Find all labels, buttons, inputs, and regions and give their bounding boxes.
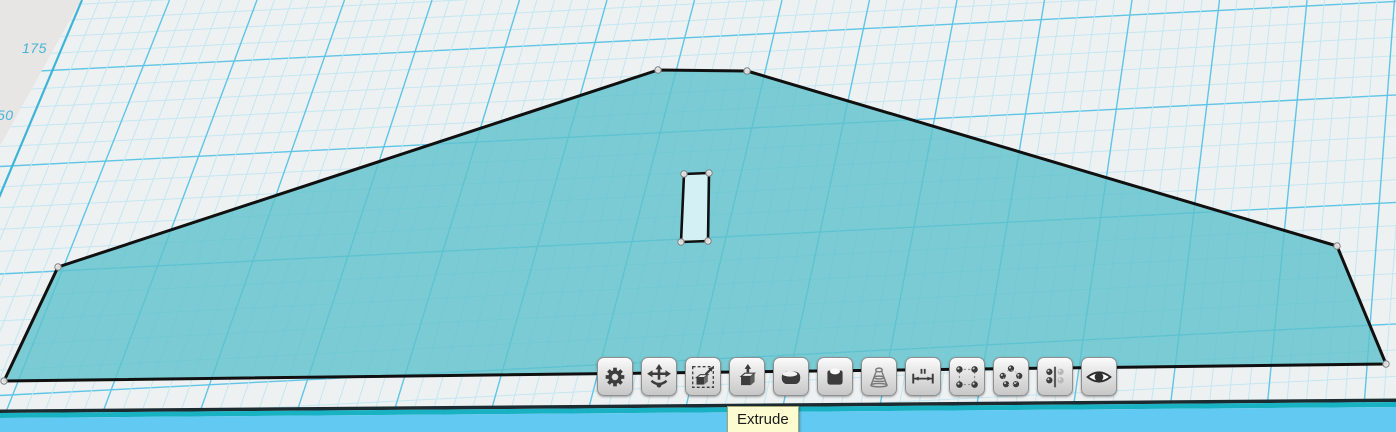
extrude-icon (734, 364, 760, 390)
vertex-marker[interactable] (678, 239, 684, 245)
toolbar-button-scale[interactable] (685, 357, 721, 396)
vertex-marker[interactable] (744, 68, 750, 74)
toolbar-button-measure[interactable] (905, 357, 941, 396)
move-icon (646, 364, 672, 390)
toolbar-button-settings[interactable] (597, 357, 633, 396)
scale-icon (690, 364, 716, 390)
toolbar-button-circular-pattern[interactable] (993, 357, 1029, 396)
toolbar-button-loft[interactable] (861, 357, 897, 396)
vertex-marker[interactable] (1383, 361, 1389, 367)
vertex-marker[interactable] (705, 238, 711, 244)
mirror-icon (1042, 364, 1068, 390)
loft-icon (866, 364, 892, 390)
rectangular-pattern-icon (954, 364, 980, 390)
toolbar-button-move[interactable] (641, 357, 677, 396)
fillet-icon (778, 364, 804, 390)
toolbar-button-hide[interactable] (1081, 357, 1117, 396)
vertex-marker[interactable] (1, 378, 7, 384)
vertex-marker[interactable] (706, 170, 712, 176)
toolbar-button-shell[interactable] (817, 357, 853, 396)
extrude-tooltip: Extrude (727, 406, 799, 432)
toolbar-button-fillet[interactable] (773, 357, 809, 396)
context-toolbar (597, 357, 1117, 396)
settings-icon (602, 364, 628, 390)
vertex-marker[interactable] (1334, 243, 1340, 249)
toolbar-button-mirror[interactable] (1037, 357, 1073, 396)
vertex-marker[interactable] (681, 171, 687, 177)
vertex-marker[interactable] (655, 67, 661, 73)
measure-icon (910, 364, 936, 390)
slot-cutout[interactable] (681, 173, 709, 242)
toolbar-button-extrude[interactable] (729, 357, 765, 396)
toolbar-button-rectangular-pattern[interactable] (949, 357, 985, 396)
cad-viewport[interactable]: 17550 Extrude (0, 0, 1396, 432)
hide-icon (1086, 364, 1112, 390)
vertex-marker[interactable] (55, 264, 61, 270)
shell-icon (822, 364, 848, 390)
ruler-label: 50 (0, 107, 14, 123)
ruler-label: 175 (22, 40, 47, 56)
circular-pattern-icon (998, 364, 1024, 390)
